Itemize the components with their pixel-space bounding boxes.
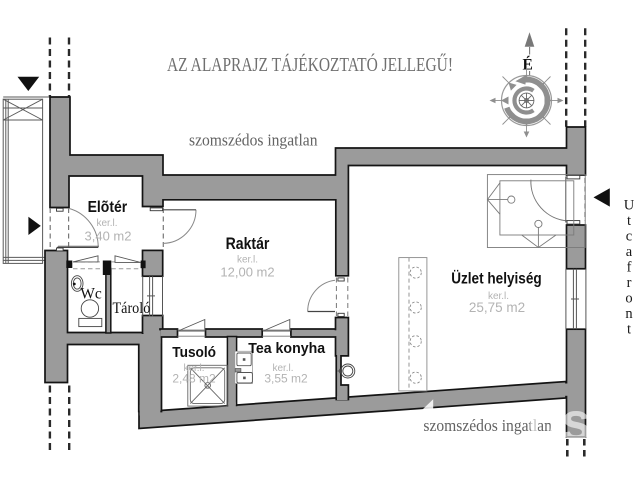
svg-text:a: a	[626, 244, 633, 260]
svg-text:2,48 m2: 2,48 m2	[172, 372, 216, 386]
svg-text:É: É	[523, 56, 533, 73]
svg-text:U: U	[624, 198, 635, 214]
svg-text:szomszédos ingatlan: szomszédos ingatlan	[189, 131, 318, 150]
svg-text:os: os	[528, 393, 592, 452]
svg-text:r: r	[627, 275, 632, 291]
svg-text:Üzlet helyiség: Üzlet helyiség	[451, 270, 542, 287]
svg-text:12,00 m2: 12,00 m2	[220, 265, 274, 280]
svg-text:Raktár: Raktár	[226, 235, 270, 253]
svg-text:Tusoló: Tusoló	[172, 344, 216, 361]
svg-text:t: t	[627, 213, 631, 229]
svg-text:25,75 m2: 25,75 m2	[469, 300, 525, 315]
svg-text:Tea konyha: Tea konyha	[248, 341, 326, 357]
svg-text:3,40 m2: 3,40 m2	[85, 229, 132, 244]
svg-text:t: t	[627, 322, 631, 338]
svg-text:AZ ALAPRAJZ TÁJÉKOZTATÓ JELLEG: AZ ALAPRAJZ TÁJÉKOZTATÓ JELLEGŰ!	[167, 52, 453, 76]
svg-text:3,55 m2: 3,55 m2	[264, 372, 308, 386]
svg-text:c: c	[626, 229, 632, 245]
svg-text:Wc: Wc	[80, 286, 102, 303]
svg-text:f: f	[627, 260, 632, 276]
svg-text:ker.l.: ker.l.	[96, 218, 117, 229]
svg-text:Elõtér: Elõtér	[88, 199, 128, 216]
svg-text:n: n	[625, 306, 633, 322]
svg-text:o: o	[625, 291, 632, 307]
svg-text:Tároló: Tároló	[113, 300, 151, 317]
